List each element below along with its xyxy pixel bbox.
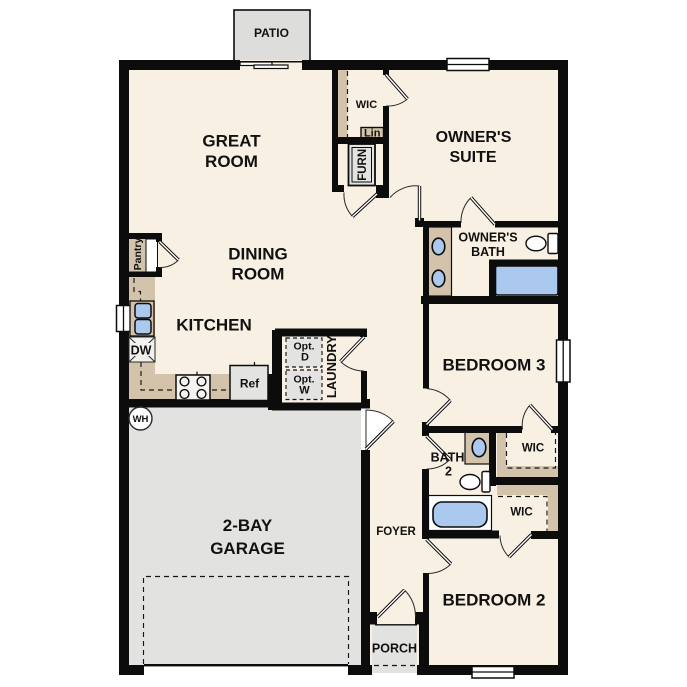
svg-text:BATH: BATH xyxy=(471,245,505,259)
svg-text:LAUNDRY: LAUNDRY xyxy=(324,335,339,398)
svg-text:BATH: BATH xyxy=(431,451,465,465)
svg-text:PATIO: PATIO xyxy=(254,26,289,40)
svg-text:OWNER'S: OWNER'S xyxy=(458,231,517,245)
svg-text:KITCHEN: KITCHEN xyxy=(176,316,252,335)
svg-text:WIC: WIC xyxy=(356,99,377,111)
svg-text:OWNER'S: OWNER'S xyxy=(436,129,512,146)
svg-text:Lin: Lin xyxy=(364,128,381,140)
svg-text:FOYER: FOYER xyxy=(376,526,416,538)
svg-text:GREAT: GREAT xyxy=(202,132,261,151)
svg-text:Pantry: Pantry xyxy=(132,238,144,271)
svg-text:DINING: DINING xyxy=(228,245,288,264)
svg-text:FURN: FURN xyxy=(357,149,369,181)
svg-text:W: W xyxy=(299,385,310,397)
svg-text:SUITE: SUITE xyxy=(449,149,496,166)
svg-text:ROOM: ROOM xyxy=(205,152,258,171)
svg-text:BEDROOM 2: BEDROOM 2 xyxy=(443,591,546,610)
svg-text:BEDROOM 3: BEDROOM 3 xyxy=(443,356,546,375)
svg-text:WIC: WIC xyxy=(510,507,532,519)
svg-text:WIC: WIC xyxy=(522,443,544,455)
svg-text:PORCH: PORCH xyxy=(372,642,417,656)
svg-text:WH: WH xyxy=(133,414,149,425)
svg-text:D: D xyxy=(301,352,309,364)
svg-text:Ref: Ref xyxy=(240,377,260,391)
svg-text:2: 2 xyxy=(445,465,452,479)
svg-text:ROOM: ROOM xyxy=(232,265,285,284)
svg-text:GARAGE: GARAGE xyxy=(210,539,285,558)
svg-text:2-BAY: 2-BAY xyxy=(223,516,273,535)
svg-text:DW: DW xyxy=(131,344,152,358)
